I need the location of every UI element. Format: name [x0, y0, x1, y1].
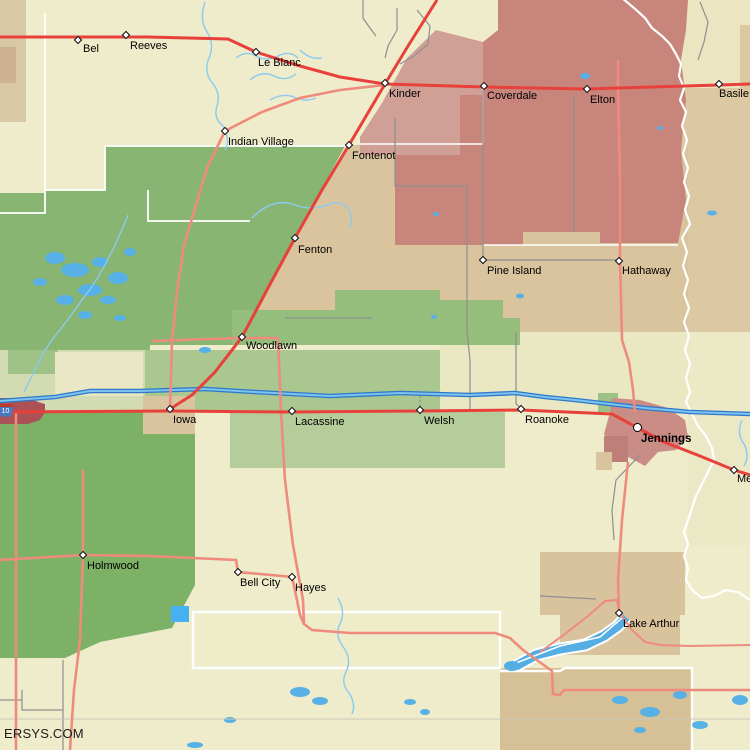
town-label: Jennings: [641, 434, 691, 445]
town-marker: [79, 551, 87, 559]
town-marker: [479, 256, 487, 264]
town-marker: [122, 31, 130, 39]
site-watermark: ERSYS.COM: [4, 726, 84, 741]
town-label: Reeves: [130, 41, 167, 52]
town-label: Fenton: [298, 245, 332, 256]
town-label: Hathaway: [622, 266, 671, 277]
town-label: Kinder: [389, 89, 421, 100]
towns-layer: BelReevesLe BlancKinderCoverdaleEltonBas…: [0, 0, 750, 750]
town-label: Indian Village: [228, 137, 294, 148]
town-marker: [221, 127, 229, 135]
town-marker: [715, 80, 723, 88]
town-marker: [234, 568, 242, 576]
town-label: Iowa: [173, 415, 196, 426]
town-marker: [288, 573, 296, 581]
town-label: Pine Island: [487, 266, 541, 277]
town-marker: [517, 405, 525, 413]
town-label: Lake Arthur: [623, 619, 679, 630]
town-marker: [288, 407, 296, 415]
town-marker: [615, 609, 623, 617]
town-marker: [583, 85, 591, 93]
town-label: Le Blanc: [258, 58, 301, 69]
town-marker: [480, 82, 488, 90]
town-label: Fontenot: [352, 151, 395, 162]
map-canvas[interactable]: 10 BelReevesLe BlancKinderCoverdaleElton…: [0, 0, 750, 750]
town-label: Holmwood: [87, 561, 139, 572]
town-marker: [633, 423, 642, 432]
town-marker: [615, 257, 623, 265]
town-label: Welsh: [424, 416, 454, 427]
town-label: Bel: [83, 44, 99, 55]
town-marker: [74, 36, 82, 44]
town-marker: [291, 234, 299, 242]
town-label: Elton: [590, 95, 615, 106]
town-label: Me: [737, 474, 750, 485]
town-label: Woodlawn: [246, 341, 297, 352]
town-label: Coverdale: [487, 91, 537, 102]
town-marker: [416, 406, 424, 414]
town-label: Basile: [719, 89, 749, 100]
town-marker: [381, 79, 389, 87]
town-label: Roanoke: [525, 415, 569, 426]
town-label: Hayes: [295, 583, 326, 594]
town-label: Lacassine: [295, 417, 345, 428]
town-marker: [345, 141, 353, 149]
town-marker: [238, 333, 246, 341]
town-marker: [252, 48, 260, 56]
town-label: Bell City: [240, 578, 280, 589]
town-marker: [166, 405, 174, 413]
